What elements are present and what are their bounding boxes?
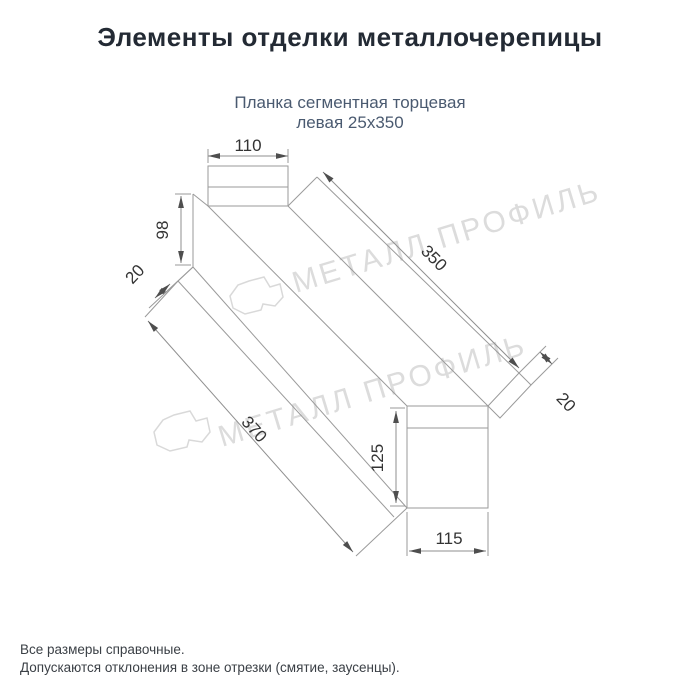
dimension-bottom-width: 115 <box>407 512 488 556</box>
dimension-label-115: 115 <box>435 529 462 548</box>
dimension-top-width: 110 <box>208 136 288 163</box>
footer-note-line1: Все размеры справочные. <box>20 641 400 659</box>
dimension-left-flange: 20 <box>122 261 193 308</box>
metall-profil-logo-icon <box>154 411 210 451</box>
footer-note-line2: Допускаются отклонения в зоне отрезки (с… <box>20 659 400 677</box>
top-end-cap <box>208 166 288 206</box>
metall-profil-logo-icon <box>230 277 283 314</box>
dimension-label-110: 110 <box>234 136 261 155</box>
dimension-label-20-right: 20 <box>553 389 580 416</box>
end-flange <box>488 373 531 418</box>
dimension-label-125: 125 <box>368 444 387 472</box>
dimension-bottom-height: 125 <box>368 408 405 506</box>
dimension-label-20-left: 20 <box>122 261 149 288</box>
footer-notes: Все размеры справочные. Допускаются откл… <box>20 641 400 677</box>
watermark-text: МЕТАЛЛ ПРОФИЛЬ <box>288 174 604 299</box>
dimension-label-98: 98 <box>153 221 172 240</box>
dimension-left-height: 98 <box>153 194 191 265</box>
watermark-band-top: МЕТАЛЛ ПРОФИЛЬ <box>230 174 605 314</box>
bottom-end-cap <box>407 406 488 508</box>
technical-drawing: МЕТАЛЛ ПРОФИЛЬ МЕТАЛЛ ПРОФИЛЬ <box>0 0 700 700</box>
